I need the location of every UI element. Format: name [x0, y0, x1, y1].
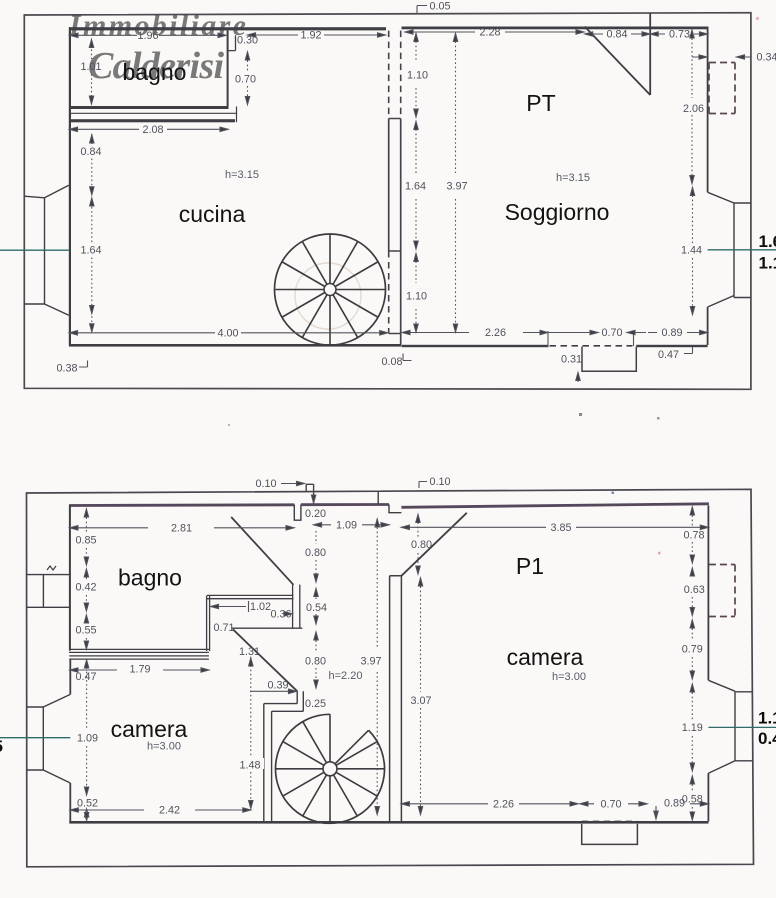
svg-text:0.42: 0.42 [75, 582, 96, 594]
svg-text:1.6: 1.6 [759, 232, 776, 251]
svg-text:0.80: 0.80 [305, 547, 326, 559]
svg-text:1.19: 1.19 [682, 722, 703, 734]
svg-text:2.26: 2.26 [493, 798, 514, 810]
svg-text:0.78: 0.78 [683, 530, 704, 542]
svg-text:0.63: 0.63 [684, 584, 705, 596]
svg-text:h=3.00: h=3.00 [552, 671, 586, 683]
svg-text:0.47: 0.47 [75, 671, 96, 683]
svg-text:0.71: 0.71 [213, 622, 234, 634]
svg-text:2.42: 2.42 [159, 805, 180, 817]
svg-text:3.97: 3.97 [360, 656, 381, 668]
svg-text:2.28: 2.28 [479, 27, 500, 39]
svg-text:1.1: 1.1 [758, 709, 776, 728]
svg-text:1.64: 1.64 [405, 181, 426, 193]
svg-text:0.89: 0.89 [661, 327, 682, 339]
svg-text:1.48: 1.48 [239, 759, 260, 771]
svg-text:1.96: 1.96 [137, 30, 158, 42]
svg-text:0.70: 0.70 [600, 798, 621, 810]
svg-text:0.08: 0.08 [381, 356, 402, 368]
svg-text:1.79: 1.79 [129, 664, 150, 676]
svg-text:cucina: cucina [179, 201, 246, 227]
svg-text:1.64: 1.64 [80, 245, 101, 257]
svg-text:1.44: 1.44 [681, 245, 702, 257]
svg-text:0.84: 0.84 [606, 29, 627, 41]
svg-text:h=3.00: h=3.00 [147, 741, 181, 753]
svg-text:0.39: 0.39 [267, 680, 288, 692]
svg-text:P1: P1 [516, 553, 544, 579]
svg-text:0.52: 0.52 [77, 798, 98, 810]
svg-text:2.81: 2.81 [171, 522, 192, 534]
svg-text:0.70: 0.70 [601, 327, 622, 339]
svg-text:3.85: 3.85 [550, 522, 571, 534]
svg-text:0.80: 0.80 [411, 539, 432, 551]
svg-text:5: 5 [0, 737, 3, 756]
svg-text:1.09: 1.09 [77, 733, 98, 745]
svg-text:h=3.15: h=3.15 [556, 172, 590, 184]
svg-text:1.10: 1.10 [406, 291, 427, 303]
svg-text:3.07: 3.07 [410, 695, 431, 707]
svg-text:3.97: 3.97 [446, 181, 467, 193]
svg-text:0.31: 0.31 [561, 354, 582, 366]
svg-text:0.05: 0.05 [429, 1, 450, 13]
svg-text:1.92: 1.92 [300, 30, 321, 42]
svg-text:0.34: 0.34 [757, 52, 776, 64]
svg-text:0.20: 0.20 [305, 508, 326, 520]
svg-text:0.80: 0.80 [305, 656, 326, 668]
svg-text:2.08: 2.08 [142, 124, 163, 136]
svg-text:0.54: 0.54 [306, 602, 327, 614]
svg-text:0.55: 0.55 [75, 625, 96, 637]
svg-text:0.38: 0.38 [56, 362, 77, 374]
svg-text:0.89: 0.89 [664, 797, 685, 809]
svg-text:0.79: 0.79 [682, 643, 703, 655]
svg-text:0.70: 0.70 [235, 74, 256, 86]
svg-text:0.73: 0.73 [669, 29, 690, 41]
svg-text:0.10: 0.10 [429, 476, 450, 488]
svg-text:0.47: 0.47 [658, 349, 679, 361]
svg-text:bagno: bagno [123, 59, 187, 85]
svg-text:0.84: 0.84 [80, 146, 101, 158]
svg-text:2.06: 2.06 [683, 103, 704, 115]
svg-text:0.4: 0.4 [758, 729, 776, 748]
svg-text:bagno: bagno [118, 565, 182, 591]
svg-text:1.10: 1.10 [407, 70, 428, 82]
svg-text:camera: camera [507, 644, 584, 670]
svg-text:h=2.20: h=2.20 [329, 670, 363, 682]
svg-text:0.10: 0.10 [255, 478, 276, 490]
svg-text:h=3.15: h=3.15 [225, 169, 259, 181]
svg-text:0.25: 0.25 [305, 698, 326, 710]
svg-text:1.09: 1.09 [336, 519, 357, 531]
svg-text:camera: camera [111, 716, 188, 742]
svg-text:Soggiorno: Soggiorno [505, 199, 610, 225]
svg-text:1.02: 1.02 [250, 601, 271, 613]
svg-text:4.00: 4.00 [217, 327, 238, 339]
svg-text:PT: PT [526, 90, 555, 116]
svg-text:1.31: 1.31 [239, 646, 260, 658]
svg-text:1.01: 1.01 [80, 61, 101, 73]
svg-text:1.1: 1.1 [759, 254, 776, 273]
svg-text:2.26: 2.26 [485, 327, 506, 339]
svg-text:0.85: 0.85 [75, 535, 96, 547]
